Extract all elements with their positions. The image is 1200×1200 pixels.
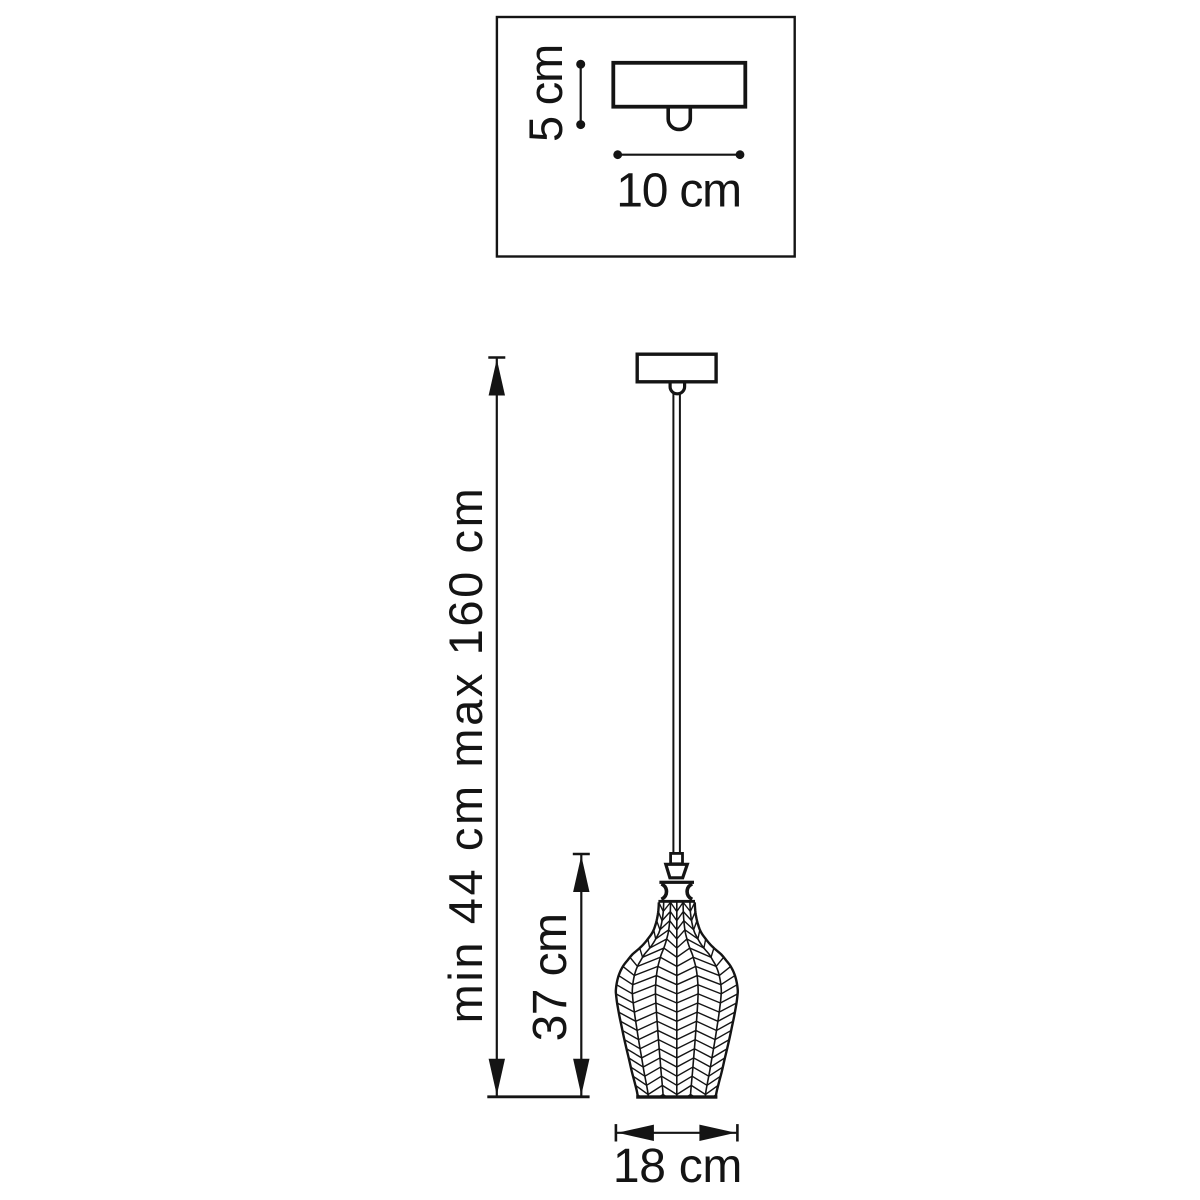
svg-text:18 cm: 18 cm — [613, 1140, 742, 1193]
svg-text:37 cm: 37 cm — [524, 914, 577, 1042]
svg-text:10 cm: 10 cm — [616, 164, 741, 217]
svg-text:5 cm: 5 cm — [519, 45, 572, 142]
svg-text:min 44 cm max 160 cm: min 44 cm max 160 cm — [439, 486, 492, 1024]
